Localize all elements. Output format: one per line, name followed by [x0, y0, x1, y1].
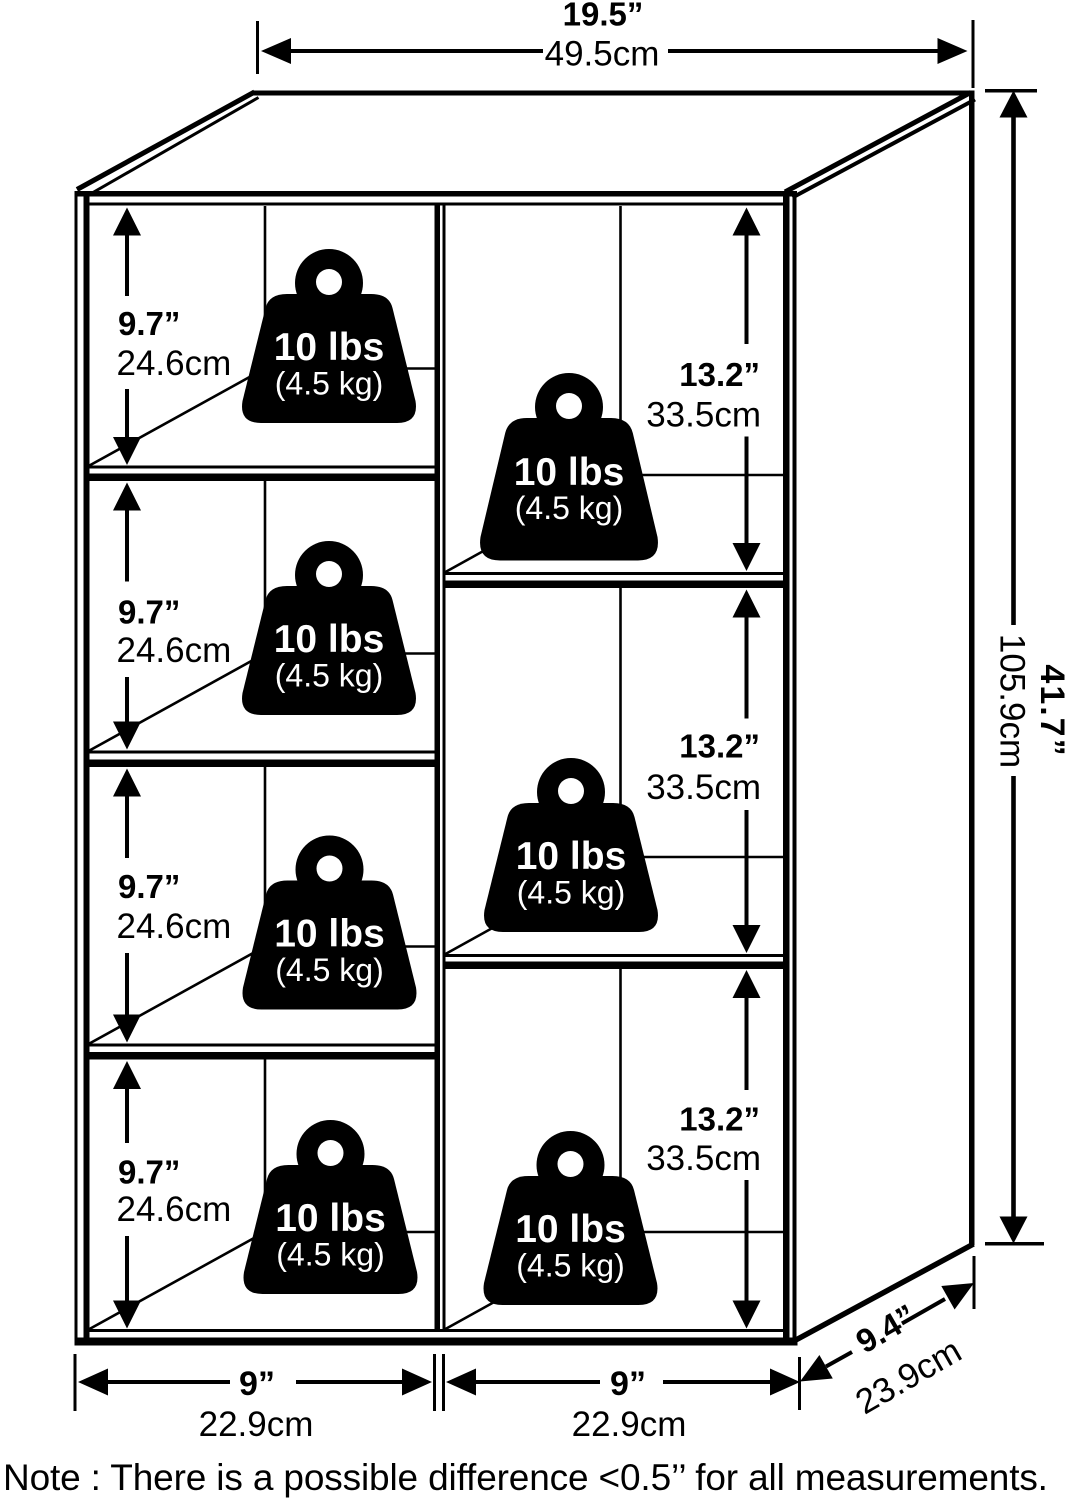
- svg-text:(4.5 kg): (4.5 kg): [517, 875, 625, 911]
- svg-text:(4.5 kg): (4.5 kg): [275, 952, 383, 988]
- svg-text:9.7”: 9.7”: [118, 594, 180, 631]
- svg-text:(4.5 kg): (4.5 kg): [516, 1248, 624, 1284]
- svg-text:10 lbs: 10 lbs: [516, 835, 627, 878]
- svg-text:19.5”: 19.5”: [563, 0, 644, 33]
- svg-text:9”: 9”: [610, 1365, 646, 1403]
- svg-text:22.9cm: 22.9cm: [572, 1405, 687, 1444]
- svg-text:Note : There is a possible dif: Note : There is a possible difference <0…: [3, 1457, 1048, 1498]
- svg-text:10 lbs: 10 lbs: [274, 326, 385, 369]
- svg-text:(4.5 kg): (4.5 kg): [276, 1237, 384, 1273]
- svg-text:33.5cm: 33.5cm: [646, 768, 761, 807]
- svg-text:24.6cm: 24.6cm: [117, 631, 232, 670]
- svg-text:13.2”: 13.2”: [679, 728, 760, 765]
- svg-text:33.5cm: 33.5cm: [646, 1139, 761, 1178]
- svg-text:10 lbs: 10 lbs: [274, 618, 385, 661]
- svg-text:33.5cm: 33.5cm: [646, 396, 761, 435]
- svg-text:24.6cm: 24.6cm: [117, 344, 232, 383]
- svg-text:9.7”: 9.7”: [118, 305, 180, 342]
- svg-text:49.5cm: 49.5cm: [545, 35, 660, 74]
- svg-text:9”: 9”: [239, 1365, 275, 1403]
- svg-text:(4.5 kg): (4.5 kg): [515, 490, 623, 526]
- svg-text:24.6cm: 24.6cm: [117, 1190, 232, 1229]
- svg-text:10 lbs: 10 lbs: [275, 1197, 386, 1240]
- svg-text:(4.5 kg): (4.5 kg): [275, 366, 383, 402]
- svg-text:9.7”: 9.7”: [118, 868, 180, 905]
- svg-text:(4.5 kg): (4.5 kg): [275, 658, 383, 694]
- svg-text:13.2”: 13.2”: [679, 1101, 760, 1138]
- svg-text:9.7”: 9.7”: [118, 1154, 180, 1191]
- svg-text:22.9cm: 22.9cm: [199, 1405, 314, 1444]
- svg-text:13.2”: 13.2”: [679, 356, 760, 393]
- svg-text:24.6cm: 24.6cm: [117, 907, 232, 946]
- svg-text:10 lbs: 10 lbs: [514, 451, 625, 494]
- svg-text:105.9cm: 105.9cm: [993, 634, 1032, 768]
- svg-text:10 lbs: 10 lbs: [515, 1208, 626, 1251]
- svg-text:10 lbs: 10 lbs: [274, 913, 385, 956]
- svg-text:41.7”: 41.7”: [1033, 664, 1067, 757]
